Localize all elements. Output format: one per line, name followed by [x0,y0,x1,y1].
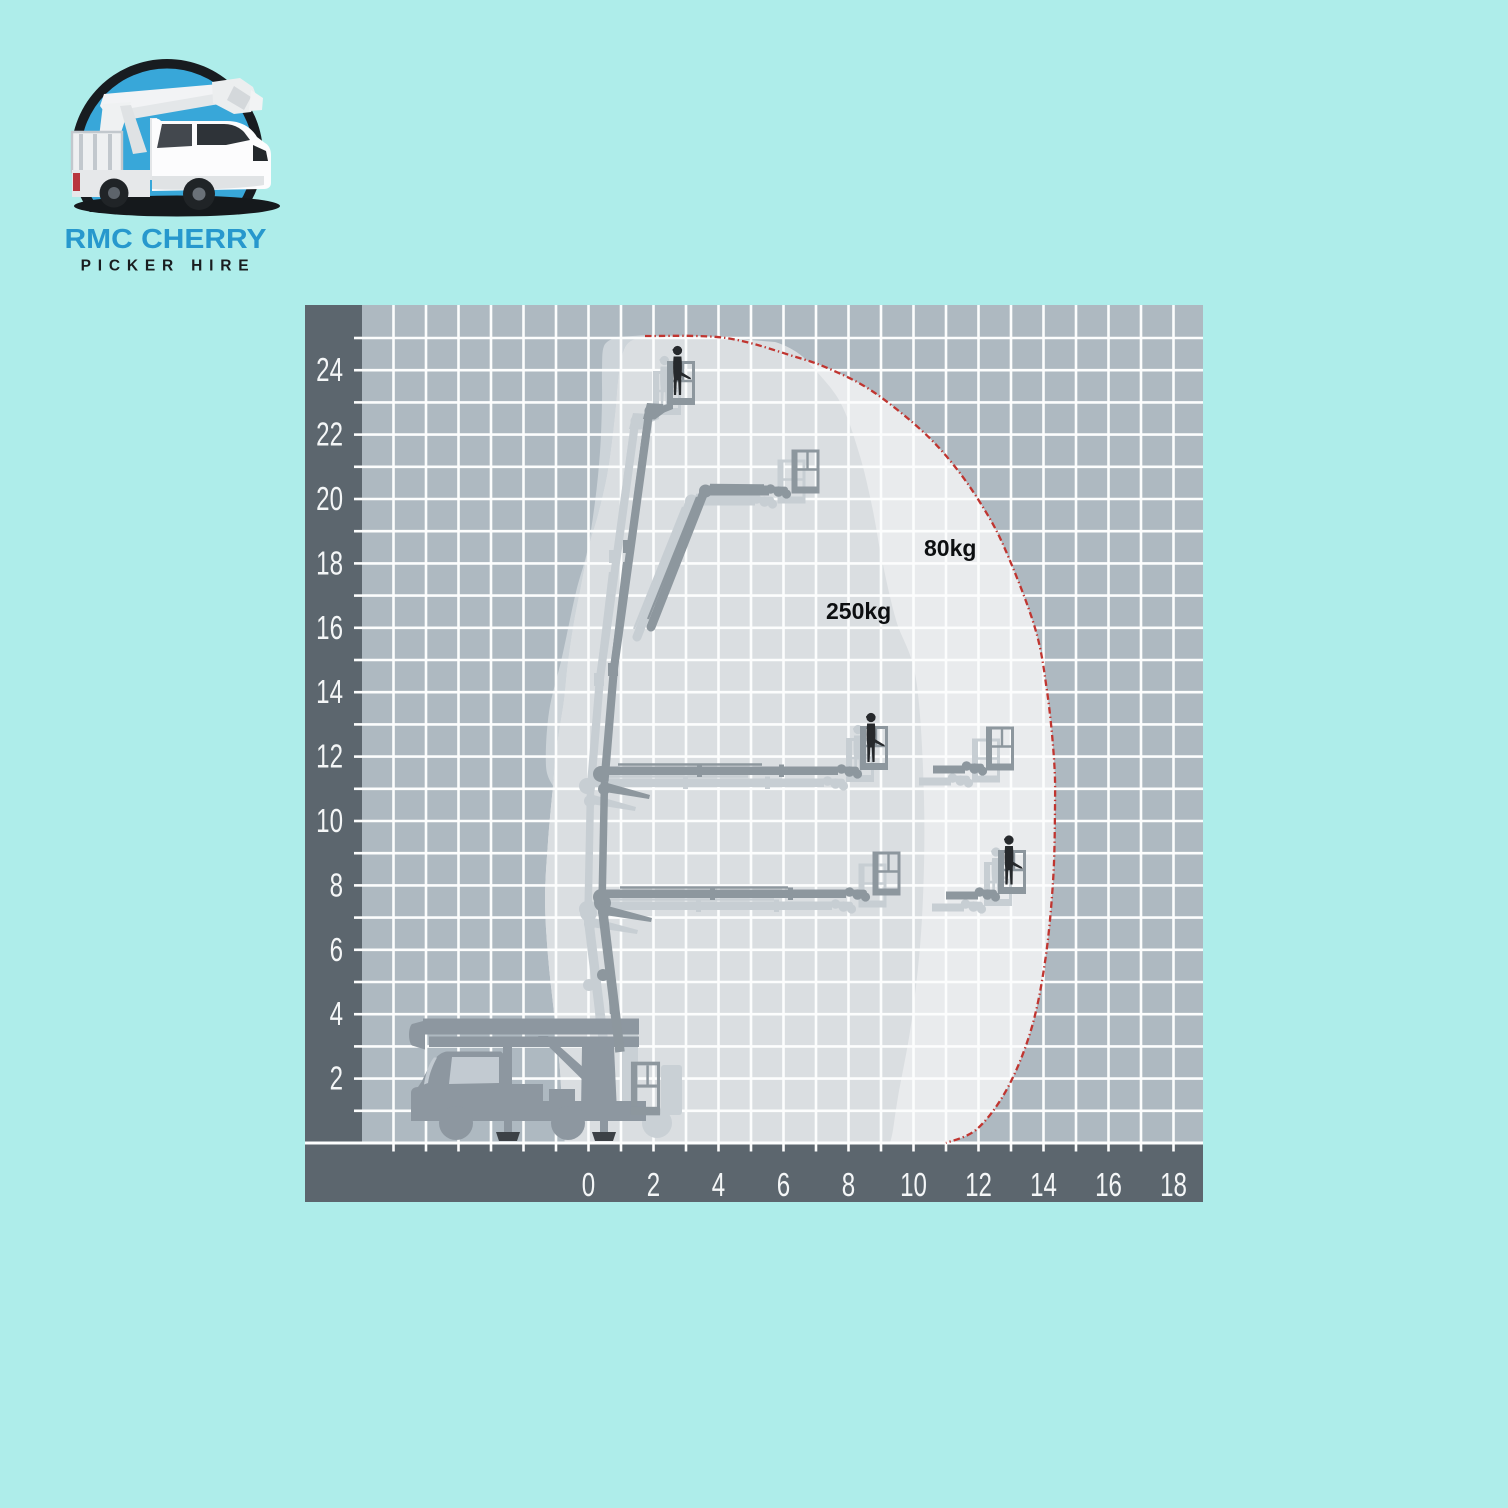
svg-text:16: 16 [316,610,343,647]
svg-text:4: 4 [712,1167,725,1204]
svg-text:14: 14 [316,675,343,712]
svg-text:PICKER HIRE: PICKER HIRE [81,258,256,275]
svg-text:6: 6 [330,932,343,969]
svg-text:2: 2 [330,1061,343,1098]
svg-text:8: 8 [330,868,343,905]
svg-text:22: 22 [316,417,343,454]
svg-text:18: 18 [316,546,343,583]
svg-text:12: 12 [316,739,343,776]
svg-text:6: 6 [777,1167,790,1204]
svg-text:14: 14 [1030,1167,1057,1204]
svg-text:250kg: 250kg [826,598,891,624]
svg-text:80kg: 80kg [924,535,976,561]
svg-text:10: 10 [316,803,343,840]
svg-text:RMC CHERRY: RMC CHERRY [65,224,267,255]
svg-text:18: 18 [1160,1167,1187,1204]
svg-text:10: 10 [900,1167,927,1204]
svg-text:8: 8 [842,1167,855,1204]
svg-text:4: 4 [330,997,343,1034]
svg-text:12: 12 [965,1167,992,1204]
svg-text:16: 16 [1095,1167,1122,1204]
svg-text:20: 20 [316,481,343,518]
svg-text:0: 0 [582,1167,595,1204]
svg-text:24: 24 [316,353,343,390]
svg-text:2: 2 [647,1167,660,1204]
